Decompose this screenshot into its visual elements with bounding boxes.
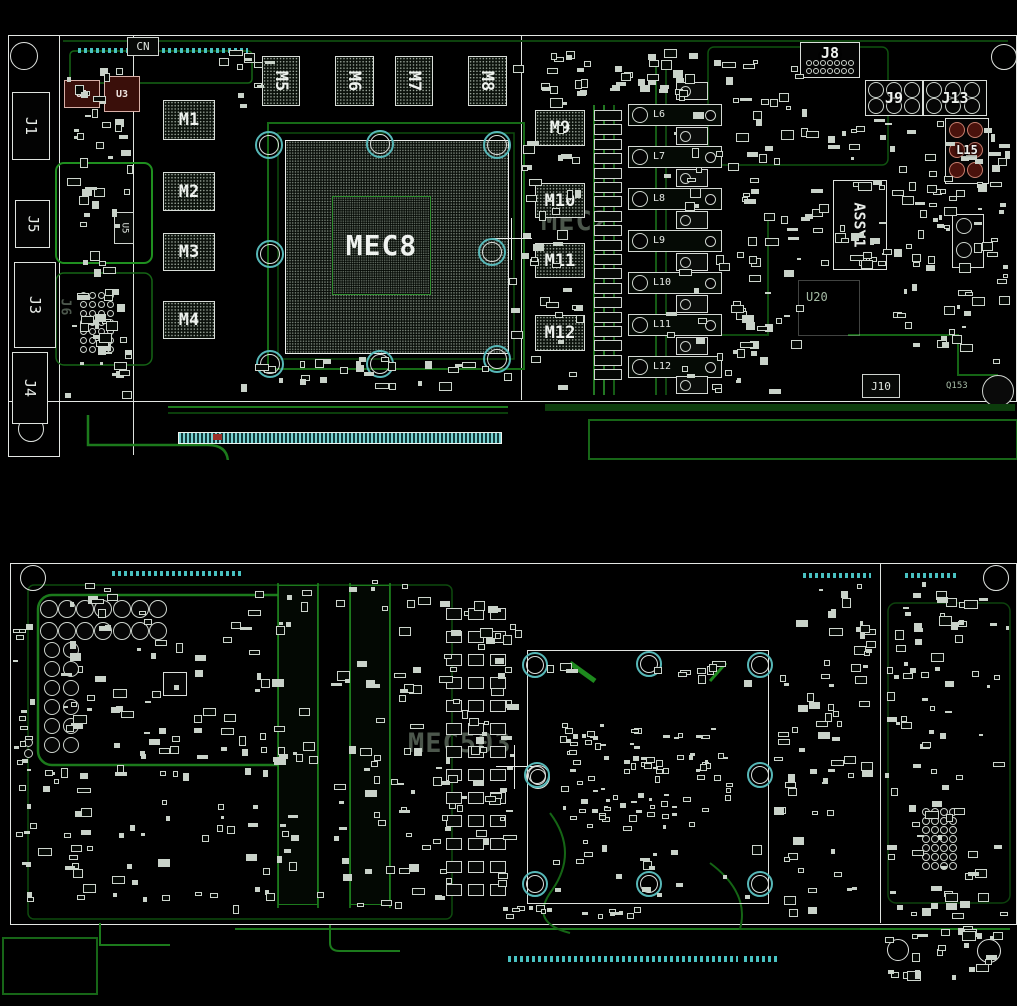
solder-pad [490, 746, 506, 758]
smd-component [194, 728, 202, 733]
smd-component [624, 760, 630, 764]
smd-component [901, 716, 907, 722]
smd-component [647, 812, 655, 816]
smd-component [521, 253, 530, 259]
smd-component [575, 190, 581, 198]
gpu-mount-ring [747, 762, 773, 788]
smd-component [831, 609, 836, 612]
smd-component [912, 850, 924, 856]
gpu-die: MEC8 [332, 196, 431, 295]
smd-component [126, 350, 131, 355]
smd-component [27, 769, 31, 771]
smd-component [553, 242, 563, 246]
solder-pad-row [905, 573, 957, 578]
smd-component [334, 836, 338, 841]
smd-component [478, 644, 485, 650]
smd-component [464, 611, 469, 616]
smd-component [922, 582, 926, 587]
smd-component [411, 790, 415, 794]
smd-component [391, 779, 398, 785]
smd-component [764, 213, 774, 221]
connector-hole [949, 835, 957, 843]
smd-component [692, 148, 699, 158]
smd-component [858, 182, 872, 192]
smd-component [743, 64, 756, 69]
smd-component [315, 359, 324, 368]
smd-component [522, 166, 528, 171]
smd-component [572, 305, 577, 310]
mosfet [676, 211, 708, 229]
inductor-label: L12 [653, 361, 671, 372]
smd-component [224, 714, 236, 722]
solder-pad [446, 815, 462, 827]
smd-component [733, 98, 739, 103]
smd-component [811, 189, 823, 193]
resistor [594, 225, 622, 236]
smd-component [891, 788, 898, 796]
solder-pad [446, 723, 462, 735]
connector-hole [80, 346, 87, 353]
smd-component [266, 893, 275, 901]
smd-component [832, 737, 839, 742]
smd-component [979, 734, 983, 736]
bottom-board-divider [880, 564, 881, 923]
smd-component [160, 771, 167, 776]
smd-component [238, 93, 243, 98]
smd-component [412, 888, 425, 895]
connector-hole [841, 68, 847, 74]
smd-component [402, 584, 408, 589]
smd-component [510, 754, 514, 757]
smd-component [978, 184, 987, 192]
smd-component [531, 356, 540, 363]
smd-component [513, 65, 523, 72]
smd-component [529, 179, 542, 186]
smd-component [16, 635, 24, 639]
smd-component [340, 367, 347, 375]
smd-component [918, 934, 927, 937]
connector-j5-label: J5 [24, 216, 40, 233]
smd-component [77, 895, 85, 900]
connector-hole [949, 826, 957, 834]
smd-component [533, 244, 544, 252]
smd-component [531, 257, 538, 262]
smd-component [19, 785, 26, 791]
smd-component [500, 788, 506, 792]
smd-component [343, 874, 352, 881]
smd-component [263, 868, 270, 874]
smd-component [719, 263, 730, 271]
connector-hole [40, 600, 58, 618]
smd-component [197, 755, 207, 758]
smd-component [511, 331, 523, 340]
resistor [594, 297, 622, 308]
smd-component [440, 869, 447, 874]
connector-hole [949, 862, 957, 870]
smd-component [906, 244, 912, 249]
smd-component [974, 222, 982, 225]
smd-component [263, 770, 267, 777]
smd-component [837, 721, 843, 727]
smd-component [1003, 274, 1009, 279]
smd-component [903, 607, 908, 609]
connector-hole [89, 292, 96, 299]
connector-hole [98, 301, 105, 308]
solder-pad [468, 861, 484, 873]
resistor [594, 168, 622, 179]
smd-component [784, 315, 790, 317]
smd-component [878, 261, 886, 266]
connector-hole [89, 328, 96, 335]
smd-component [388, 362, 396, 371]
pcb-assembly-drawing: CN U1 U3 U5 J1 J5 J3 J4 J6 MEC8 MEC2 MEC… [0, 0, 1017, 1006]
smd-component [83, 884, 96, 893]
smd-component [894, 249, 902, 257]
smd-component [956, 775, 963, 780]
smd-component [576, 315, 583, 323]
connector-hole [931, 853, 939, 861]
connector-j8-label: J8 [801, 44, 859, 62]
smd-component [954, 808, 965, 815]
inductor-l15-label: L15 [946, 143, 988, 157]
smd-component [959, 602, 965, 608]
smd-component [917, 835, 923, 838]
smd-component [780, 675, 787, 682]
smd-component [972, 671, 978, 677]
smd-component [70, 641, 76, 649]
smd-component [364, 372, 374, 376]
connector-hole [940, 844, 948, 852]
smd-component [418, 597, 431, 605]
smd-component [395, 902, 402, 909]
connector-hole [922, 862, 930, 870]
smd-component [959, 263, 971, 272]
smd-component [71, 702, 77, 708]
gpu-label: MEC8 [346, 229, 417, 262]
connector-hole [107, 301, 114, 308]
connector-hole [949, 844, 957, 852]
chip-u20-label: U20 [806, 290, 828, 304]
smd-component [106, 321, 117, 330]
smd-component [382, 606, 388, 611]
smd-component [798, 868, 804, 873]
smd-component [604, 756, 609, 760]
smd-component [746, 322, 755, 330]
smd-component [593, 736, 598, 740]
smd-component [139, 611, 146, 615]
smd-component [365, 790, 376, 798]
smd-component [112, 876, 125, 884]
smd-component [897, 313, 907, 318]
smd-component [158, 859, 169, 867]
smd-component [809, 702, 820, 709]
smd-component [648, 54, 656, 60]
smd-component [339, 827, 347, 830]
chip-u20-outline [798, 280, 860, 336]
smd-component [75, 811, 81, 817]
inductor-label: L10 [653, 277, 671, 288]
smd-component [73, 869, 83, 879]
smd-component [914, 628, 922, 632]
smd-component [831, 849, 835, 853]
inductor: L10 [628, 272, 722, 294]
smd-component [453, 699, 460, 704]
connector-j10-label: J10 [871, 380, 891, 393]
connector-j3: J3 [14, 262, 56, 348]
smd-component [861, 762, 873, 771]
smd-component [861, 260, 873, 270]
smd-component [80, 362, 84, 366]
smd-component [964, 943, 969, 947]
smd-component [598, 914, 604, 918]
smd-component [442, 815, 448, 821]
smd-component [913, 262, 920, 267]
smd-component [218, 804, 225, 810]
memory-chip: M7 [395, 56, 433, 106]
smd-component [634, 907, 641, 913]
smd-component [381, 357, 389, 361]
smd-component [698, 318, 707, 324]
smd-component [991, 134, 995, 142]
smd-component [476, 737, 484, 744]
smd-component [92, 109, 98, 118]
smd-component [818, 732, 830, 739]
memory-chip-label: M4 [179, 310, 199, 330]
smd-component [640, 85, 650, 91]
smd-component [656, 769, 664, 774]
smd-component [606, 799, 610, 802]
smd-component [749, 275, 761, 283]
smd-component [781, 130, 794, 140]
smd-component [672, 813, 677, 815]
smd-component [792, 727, 798, 733]
smd-component [371, 761, 379, 767]
inductor-pad [632, 233, 648, 249]
smd-component [828, 611, 835, 618]
smd-component [941, 866, 948, 870]
smd-component [938, 835, 941, 839]
solder-pad-row [78, 48, 248, 53]
smd-component [112, 373, 118, 376]
smd-component [67, 178, 81, 186]
smd-component [562, 723, 568, 728]
smd-component [928, 256, 935, 265]
smd-component [901, 722, 913, 729]
gpu-mount-ring [478, 238, 506, 266]
connector-hole [44, 718, 60, 734]
smd-component [255, 364, 269, 371]
smd-component [496, 609, 501, 612]
edge-connector-fingers-back [508, 956, 738, 962]
smd-component [696, 769, 700, 771]
smd-component [539, 211, 547, 220]
smd-component [929, 171, 937, 176]
smd-component [653, 767, 657, 769]
qfn-chip [163, 672, 187, 696]
smd-component [122, 391, 132, 399]
connector-hole [940, 853, 948, 861]
smd-component [787, 228, 799, 231]
smd-component [231, 622, 241, 630]
smd-component [687, 374, 695, 378]
smd-component [43, 786, 50, 793]
smd-component [941, 929, 950, 936]
smd-component [728, 163, 738, 171]
smd-component [81, 92, 88, 98]
smd-component [96, 142, 104, 149]
connector-hole [113, 600, 131, 618]
smd-component [22, 862, 28, 865]
smd-component [778, 739, 790, 745]
smd-component [121, 150, 131, 156]
connector-hole [827, 68, 833, 74]
inductor-pad [705, 362, 716, 373]
smd-component [579, 809, 587, 813]
smd-component [904, 289, 907, 294]
smd-component [63, 706, 68, 708]
smd-component [855, 676, 866, 684]
smd-component [505, 667, 512, 673]
smd-component [902, 196, 914, 205]
smd-component [785, 782, 796, 788]
smd-component [582, 734, 586, 738]
smd-component [558, 340, 563, 345]
smd-component [279, 622, 283, 625]
smd-component [569, 750, 577, 755]
smd-component [356, 361, 362, 365]
smd-component [195, 670, 203, 677]
smd-component [638, 793, 644, 798]
smd-component [24, 831, 30, 834]
smd-component [546, 302, 558, 308]
smd-component [828, 136, 835, 143]
smd-component [91, 599, 105, 605]
smd-component [885, 123, 892, 125]
smd-component [896, 645, 907, 652]
smd-component [357, 903, 364, 907]
smd-component [565, 728, 572, 734]
smd-component [760, 357, 768, 365]
smd-component [291, 835, 299, 841]
connector-hole [76, 622, 94, 640]
smd-component [413, 667, 421, 672]
connector-hole [834, 68, 840, 74]
smd-component [566, 669, 578, 672]
connector-hole [931, 844, 939, 852]
connector-hole [931, 826, 939, 834]
smd-component [81, 830, 91, 835]
smd-component [798, 705, 808, 713]
smd-component [895, 630, 904, 639]
smd-component [558, 125, 564, 134]
smd-component [457, 805, 463, 812]
connector-hole [956, 218, 972, 234]
smd-component [407, 600, 414, 608]
smd-component [71, 845, 82, 852]
inductor: L6 [628, 104, 722, 126]
resistor [594, 240, 622, 251]
smd-component [601, 788, 606, 791]
smd-component [301, 380, 306, 385]
smd-component [406, 833, 412, 837]
smd-component [974, 243, 982, 253]
smd-component [436, 767, 441, 770]
gpu-mount-ring [256, 240, 284, 268]
smd-component [667, 332, 674, 338]
smd-component [797, 258, 801, 260]
smd-component [993, 762, 1005, 767]
smd-component [993, 359, 999, 364]
memory-chip: M1 [163, 100, 215, 140]
smd-component [879, 222, 886, 224]
chip-assy1-label: ASSY1 [851, 202, 869, 247]
smd-component [584, 852, 593, 857]
smd-component [660, 85, 669, 89]
smd-component [661, 801, 668, 807]
smd-component [698, 675, 707, 685]
smd-component [716, 151, 723, 157]
smd-component [107, 594, 118, 601]
smd-component [245, 768, 251, 775]
smd-component [66, 725, 74, 732]
smd-component [108, 156, 113, 160]
connector-hole [806, 68, 812, 74]
smd-component [105, 352, 112, 354]
smd-component [90, 251, 99, 261]
gpu-mount-ring [747, 652, 773, 678]
gpu-mount-ring [366, 130, 394, 158]
smd-component [248, 823, 258, 827]
smd-component [961, 156, 969, 161]
smd-component [551, 53, 557, 60]
connector-hole [58, 622, 76, 640]
connector-hole [956, 242, 972, 258]
smd-component [103, 267, 117, 274]
smd-component [740, 98, 751, 101]
smd-component [573, 734, 578, 739]
smd-component [587, 824, 594, 829]
smd-component [399, 627, 411, 636]
smd-component [503, 835, 517, 840]
smd-component [630, 743, 634, 745]
smd-component [144, 619, 152, 625]
smd-component [561, 786, 568, 793]
smd-component [95, 314, 106, 322]
smd-component [631, 763, 636, 770]
smd-component [717, 353, 723, 360]
smd-component [202, 835, 209, 841]
smd-component [999, 210, 1004, 214]
smd-component [116, 68, 123, 75]
smd-component [946, 814, 952, 822]
smd-component [736, 133, 749, 142]
smd-component [54, 779, 59, 784]
smd-component [744, 680, 752, 687]
smd-component [743, 193, 750, 198]
smd-component [989, 152, 1001, 156]
smd-component [828, 145, 839, 149]
smd-component [569, 372, 576, 378]
smd-component [655, 776, 660, 783]
smd-component [904, 662, 907, 666]
smd-component [890, 891, 896, 895]
mount-hole [10, 42, 38, 70]
smd-component [946, 903, 957, 911]
connector-hole [949, 122, 965, 138]
smd-component [955, 635, 963, 643]
smd-component [98, 609, 107, 618]
smd-component [685, 74, 695, 83]
